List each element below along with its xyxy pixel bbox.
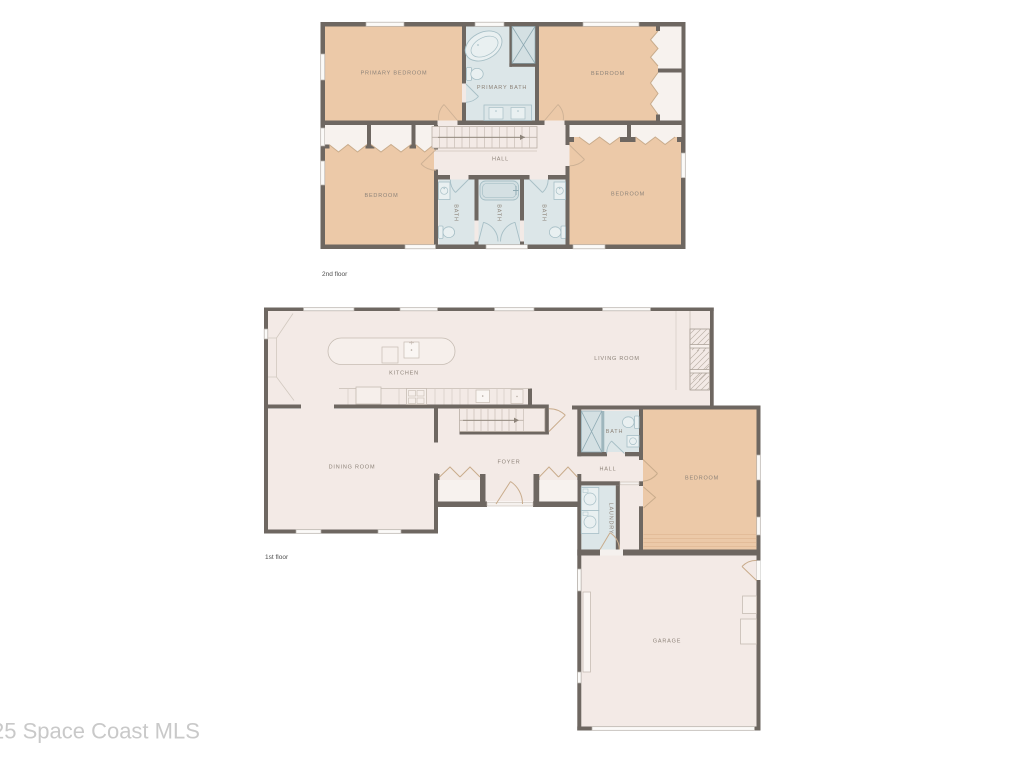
svg-text:HALL: HALL — [600, 467, 617, 473]
svg-text:HALL: HALL — [492, 157, 509, 163]
svg-text:2nd floor: 2nd floor — [322, 271, 348, 278]
svg-text:PRIMARY BATH: PRIMARY BATH — [477, 85, 527, 91]
svg-text:BEDROOM: BEDROOM — [611, 192, 645, 198]
svg-text:BATH: BATH — [541, 204, 547, 221]
svg-text:KITCHEN: KITCHEN — [389, 371, 419, 377]
svg-text:BEDROOM: BEDROOM — [591, 71, 625, 77]
svg-text:FOYER: FOYER — [498, 460, 521, 466]
svg-text:1st floor: 1st floor — [265, 554, 289, 561]
svg-text:LAUNDRY: LAUNDRY — [608, 503, 614, 535]
svg-text:DINING ROOM: DINING ROOM — [329, 465, 376, 471]
svg-text:BATH: BATH — [453, 204, 459, 221]
svg-text:LIVING ROOM: LIVING ROOM — [594, 356, 639, 362]
svg-text:PRIMARY BEDROOM: PRIMARY BEDROOM — [361, 71, 428, 77]
svg-text:GARAGE: GARAGE — [653, 639, 681, 645]
svg-text:BEDROOM: BEDROOM — [685, 476, 719, 482]
svg-text:25 Space Coast MLS: 25 Space Coast MLS — [0, 719, 200, 744]
svg-text:BATH: BATH — [606, 429, 623, 435]
svg-text:BEDROOM: BEDROOM — [364, 193, 398, 199]
svg-text:BATH: BATH — [496, 204, 502, 221]
